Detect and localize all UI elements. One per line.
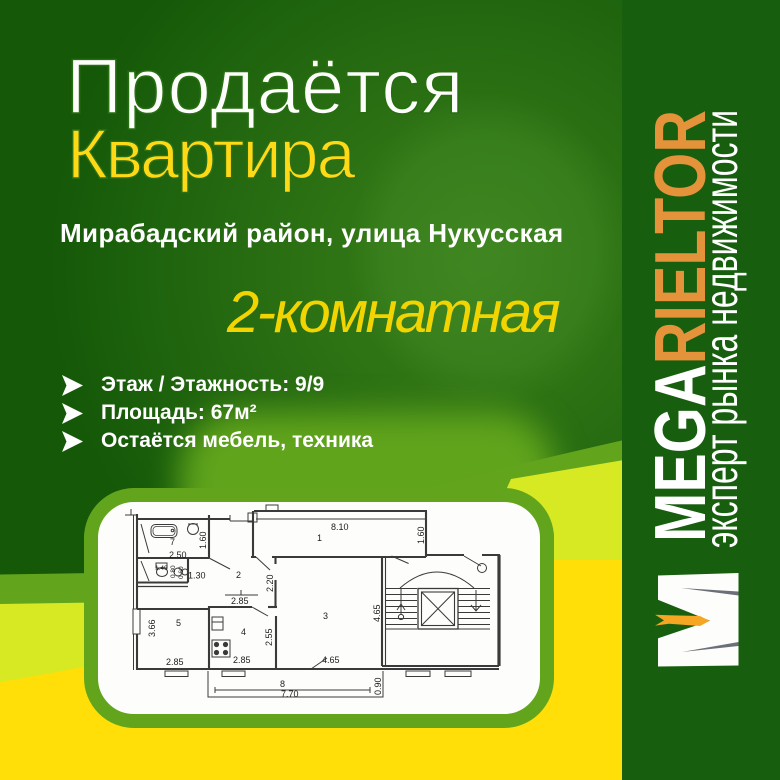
svg-text:0.60: 0.60 <box>178 566 185 579</box>
svg-text:эксперт рынка недвижимости: эксперт рынка недвижимости <box>695 110 747 548</box>
svg-text:0.80: 0.80 <box>170 565 177 578</box>
svg-text:1.60: 1.60 <box>416 526 426 544</box>
svg-text:2.50: 2.50 <box>169 550 187 560</box>
svg-text:4.65: 4.65 <box>322 655 340 665</box>
svg-text:2.85: 2.85 <box>166 657 184 667</box>
svg-text:4: 4 <box>241 627 246 637</box>
svg-text:2.85: 2.85 <box>233 655 251 665</box>
svg-text:5: 5 <box>176 618 181 628</box>
svg-text:2.85: 2.85 <box>231 596 249 606</box>
svg-text:4.65: 4.65 <box>372 604 382 622</box>
svg-text:3: 3 <box>323 611 328 621</box>
svg-text:2: 2 <box>236 570 241 580</box>
svg-text:7: 7 <box>170 537 175 547</box>
svg-text:1.60: 1.60 <box>198 531 208 549</box>
svg-text:8: 8 <box>280 679 285 689</box>
svg-text:0.90: 0.90 <box>373 677 383 695</box>
svg-text:7.70: 7.70 <box>281 689 299 699</box>
svg-text:1: 1 <box>317 533 322 543</box>
svg-text:3.66: 3.66 <box>147 619 157 637</box>
svg-text:8.10: 8.10 <box>331 522 349 532</box>
svg-text:1.40: 1.40 <box>155 565 168 572</box>
svg-text:2.20: 2.20 <box>265 574 275 592</box>
svg-text:2.55: 2.55 <box>264 628 274 646</box>
svg-text:1.30: 1.30 <box>188 571 206 581</box>
